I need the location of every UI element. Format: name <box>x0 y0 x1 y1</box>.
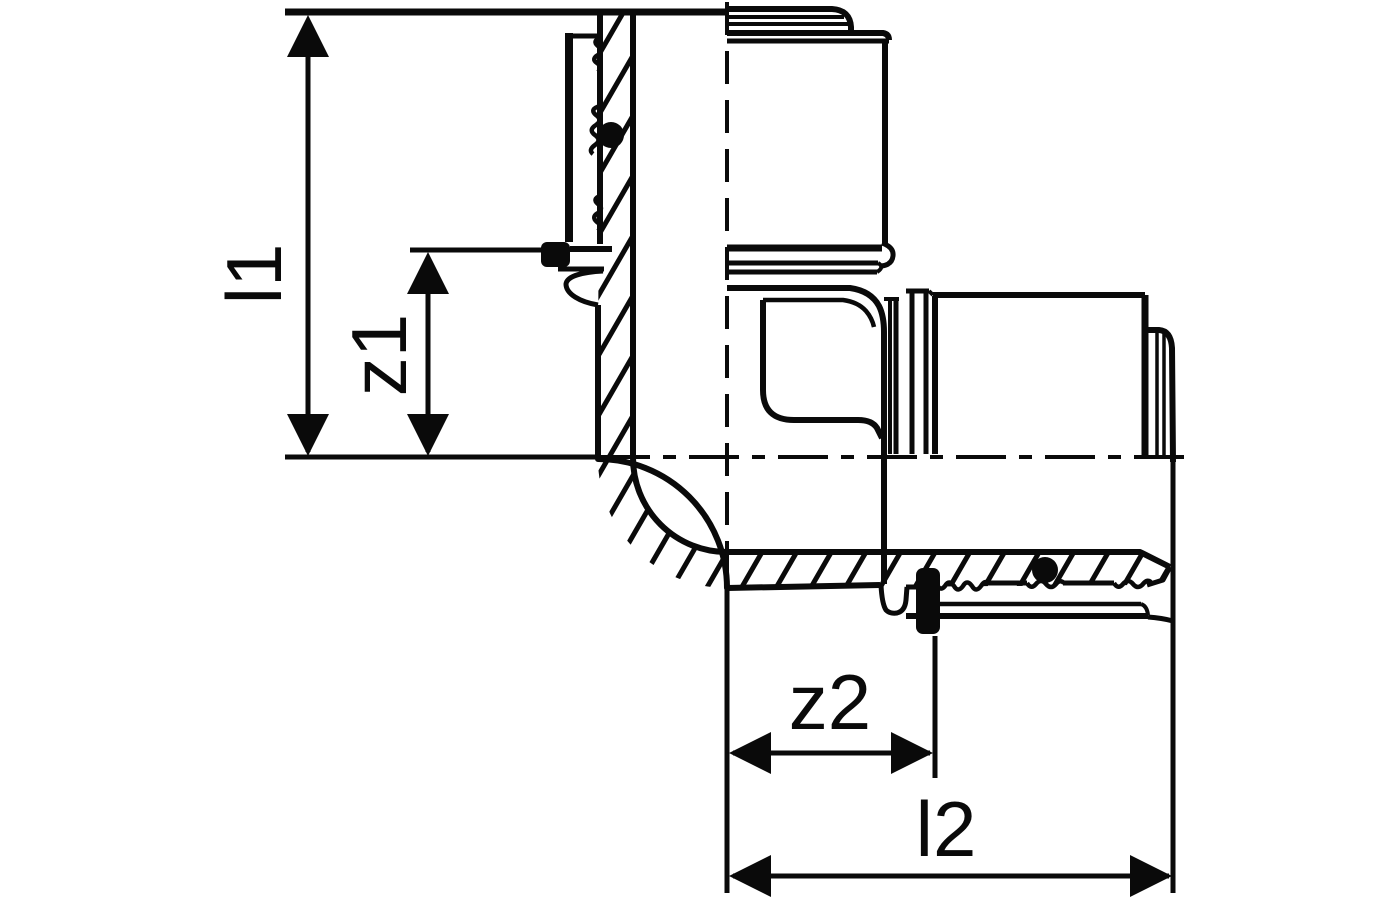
dimension-label-l2: l2 <box>916 785 977 873</box>
z1-arrowhead-top <box>407 252 449 294</box>
dimension-label-l1: l1 <box>210 244 298 305</box>
l2-arrowhead-right <box>1130 855 1172 897</box>
z1-arrowhead-bottom <box>407 414 449 456</box>
l2-arrowhead-left <box>729 855 771 897</box>
l1-arrowhead-top <box>287 15 329 57</box>
z2-arrowhead-left <box>729 732 771 774</box>
sleeve-mouth-groove <box>881 585 907 613</box>
dimension-label-z2: z2 <box>789 658 871 746</box>
press-indicator-vertical-arm <box>541 242 570 267</box>
dimension-z2: z2 <box>727 588 935 893</box>
o-ring-horizontal-arm <box>1032 557 1058 583</box>
o-ring-vertical-arm <box>598 122 624 148</box>
z2-arrowhead-right <box>891 732 933 774</box>
elbow-body <box>727 288 884 584</box>
corrugation-bead-left <box>937 582 988 590</box>
elbow-fitting-drawing: l1 z1 z2 l2 <box>0 0 1400 900</box>
end-ring <box>1147 330 1173 462</box>
bore-edge <box>633 11 1170 567</box>
dimension-z1: z1 <box>335 250 548 456</box>
dimension-l1: l1 <box>210 15 329 456</box>
drawing-page: l1 z1 z2 l2 <box>0 0 1400 900</box>
vertical-sleeve-outside <box>727 9 893 272</box>
horizontal-sleeve-outside <box>884 291 1173 462</box>
dimension-label-z1: z1 <box>335 314 423 396</box>
press-indicator-horizontal-arm <box>916 568 940 634</box>
l1-arrowhead-bottom <box>287 414 329 456</box>
